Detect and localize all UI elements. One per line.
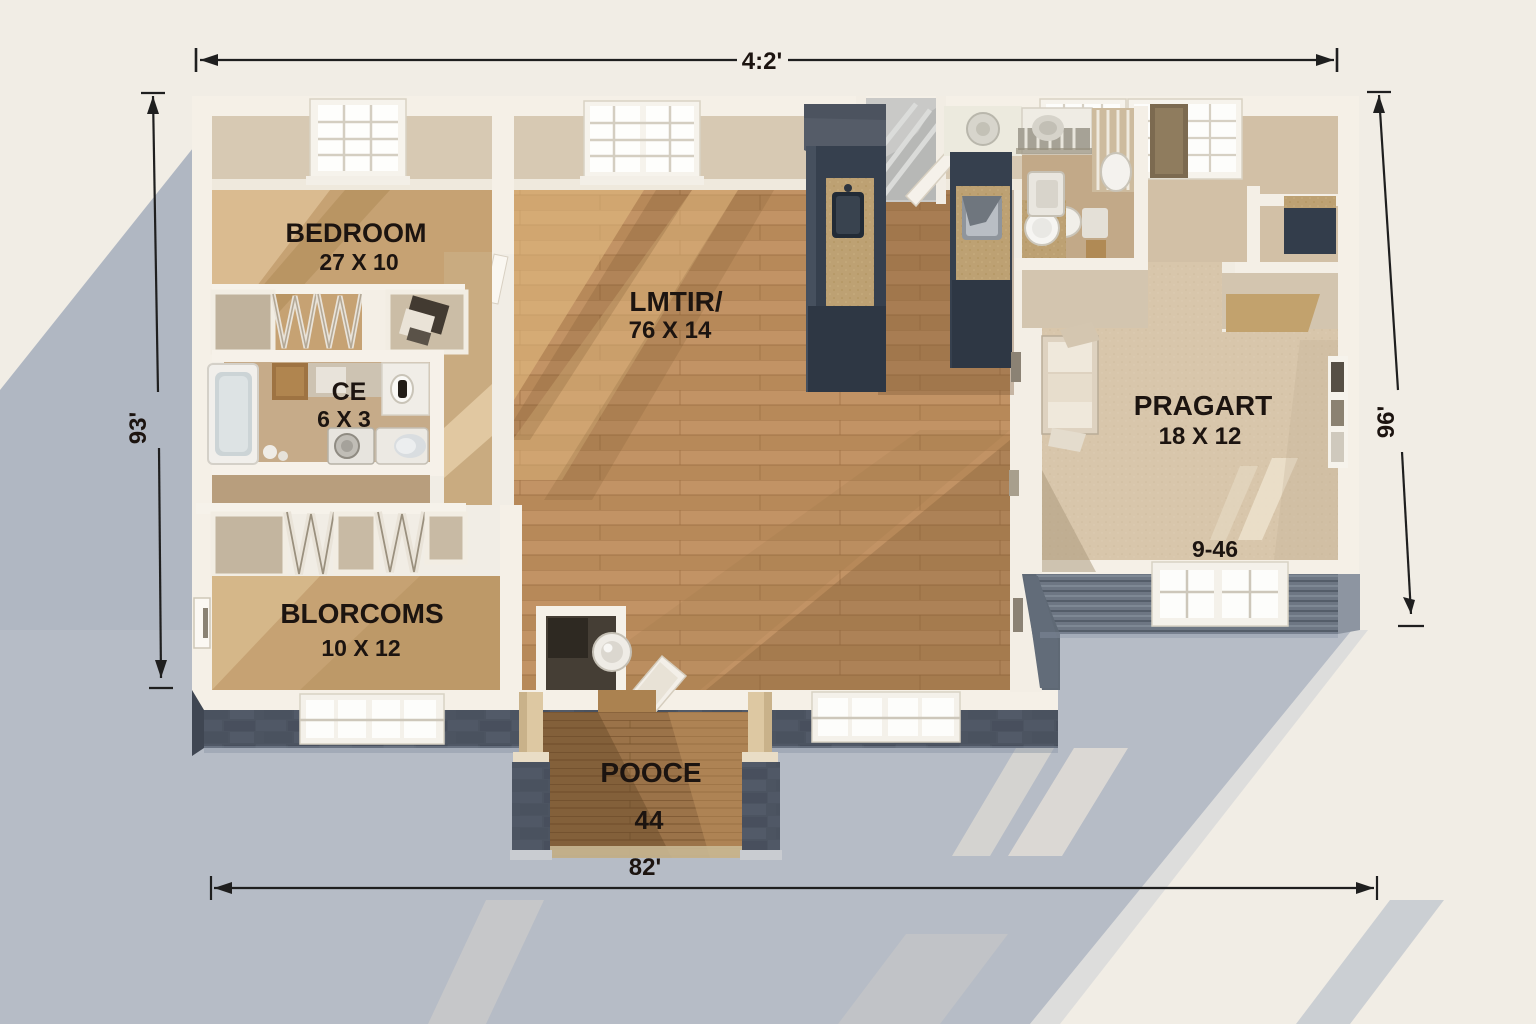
svg-text:6 X 3: 6 X 3: [317, 406, 371, 432]
svg-text:10 X 12: 10 X 12: [321, 635, 400, 661]
svg-text:BLORCOMS: BLORCOMS: [280, 598, 443, 629]
svg-text:18 X 12: 18 X 12: [1159, 423, 1242, 450]
svg-text:27 X 10: 27 X 10: [319, 249, 398, 275]
svg-text:BEDROOM: BEDROOM: [286, 218, 427, 248]
svg-text:82': 82': [629, 854, 661, 881]
svg-text:93': 93': [125, 412, 152, 444]
svg-text:44: 44: [635, 805, 664, 835]
svg-text:PRAGART: PRAGART: [1134, 390, 1272, 421]
svg-text:4:2': 4:2': [742, 48, 782, 75]
svg-text:POOCE: POOCE: [600, 757, 701, 788]
svg-text:CE: CE: [332, 378, 367, 406]
svg-text:9-46: 9-46: [1192, 536, 1238, 562]
svg-text:76 X 14: 76 X 14: [629, 317, 712, 344]
svg-text:96': 96': [1373, 406, 1400, 438]
svg-text:LMTIR/: LMTIR/: [629, 286, 723, 317]
